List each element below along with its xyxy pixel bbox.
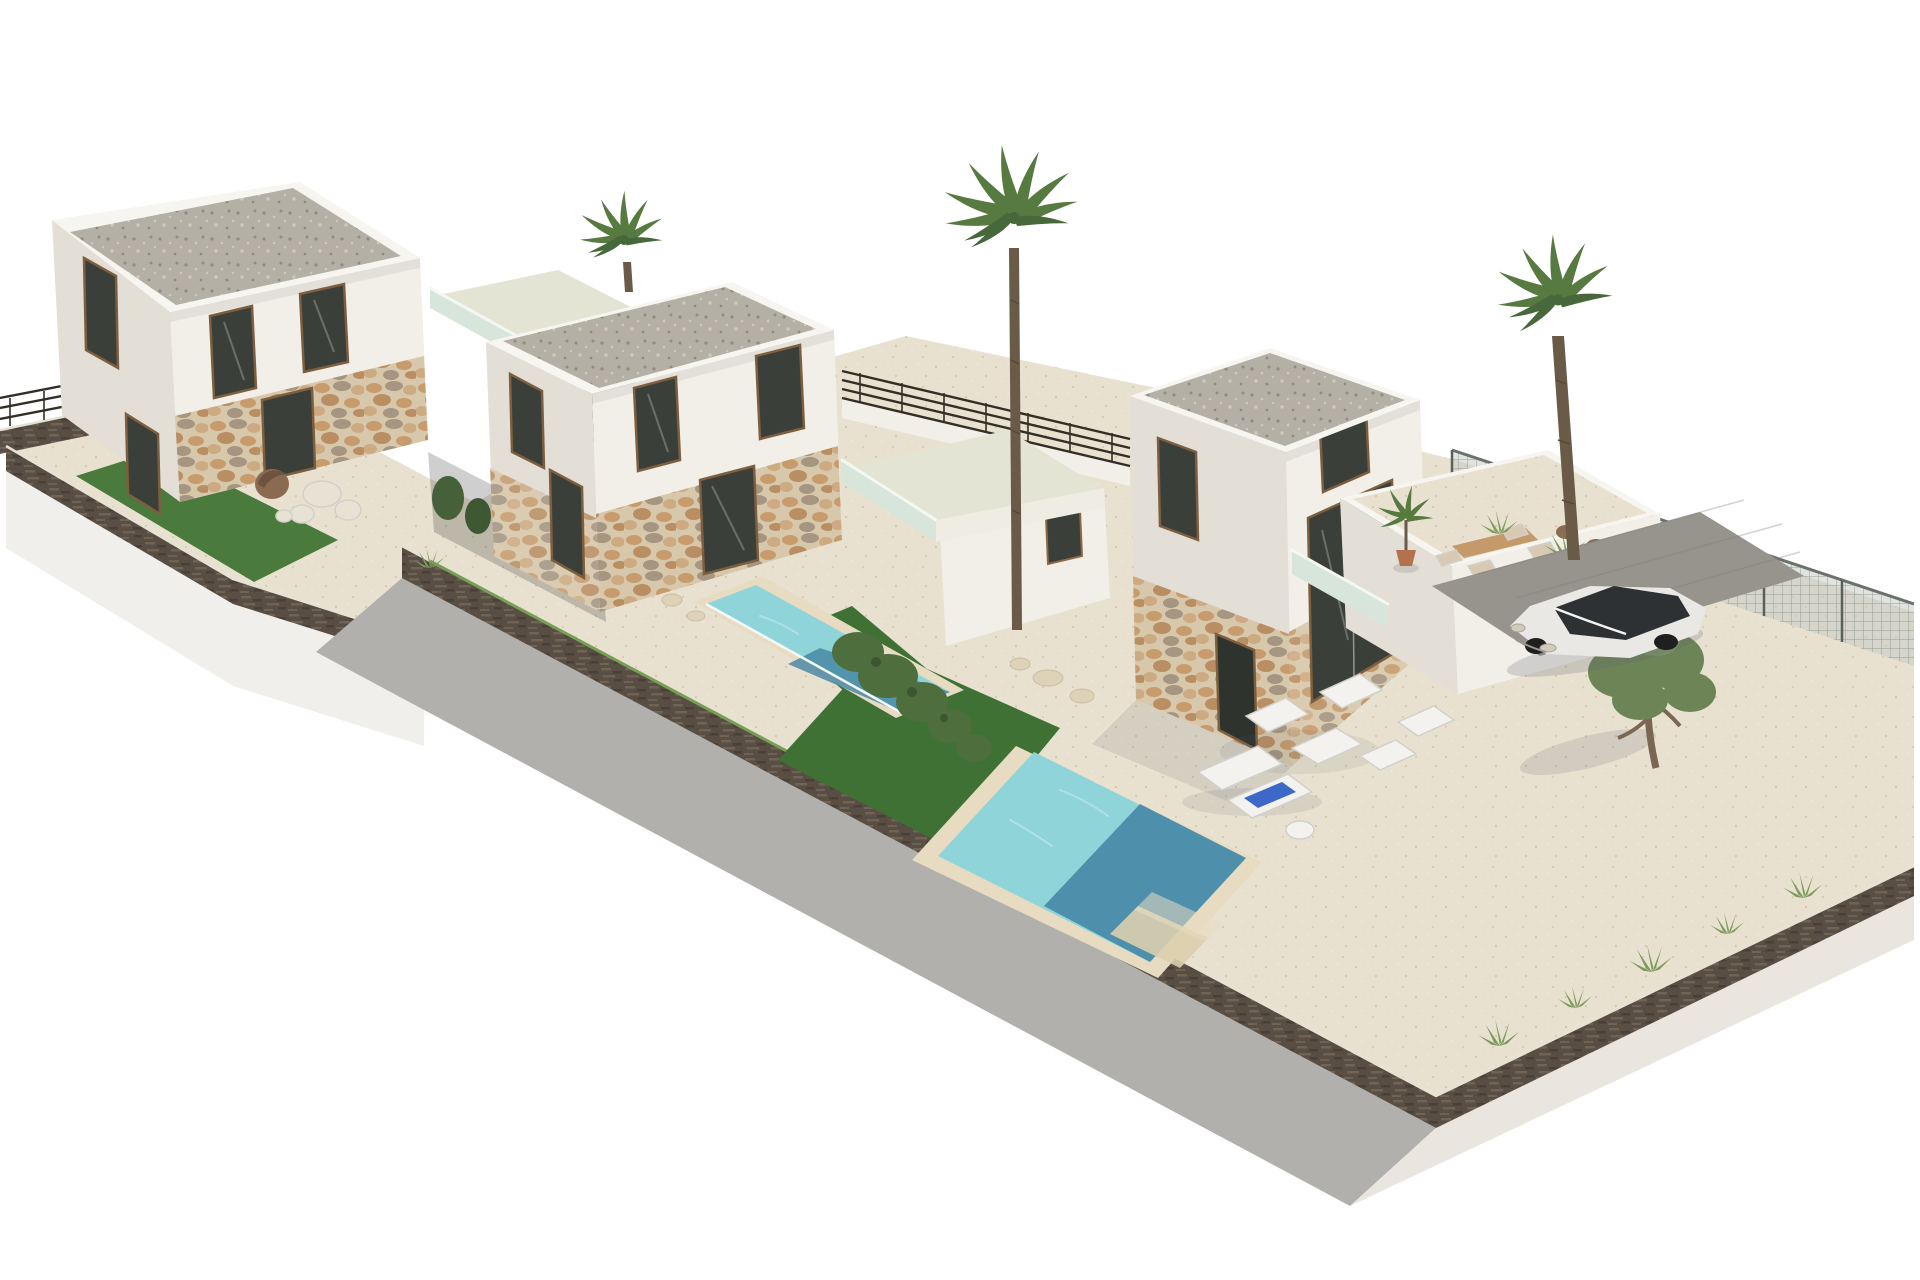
villa2-window-front-right (756, 345, 804, 439)
egg-stone (335, 500, 361, 520)
villa-render-canvas (0, 0, 1920, 1280)
villa2-window-side-upper (510, 374, 544, 468)
egg-stone-large (303, 481, 341, 507)
stepping-stone (1070, 689, 1094, 703)
villa1-window-front-left (210, 306, 256, 398)
villa1-sliding-door (262, 388, 315, 480)
stepping-stone (687, 611, 705, 621)
egg-stone (290, 505, 314, 523)
side-table (1286, 821, 1314, 839)
villa1-window-side-upper (84, 258, 118, 368)
stepping-stone (1033, 670, 1063, 686)
render-stage (0, 0, 1920, 1280)
stepping-stone (1010, 658, 1030, 670)
stepping-stone (662, 594, 682, 606)
villa2-window-side-lower (550, 470, 584, 578)
egg-stone-small (276, 510, 292, 522)
villa3-side-door (1216, 634, 1257, 750)
villa3-window-side-upper (1158, 438, 1198, 540)
climbing-plant (432, 476, 464, 520)
car-wheel-rear (1654, 634, 1678, 650)
car-headlight (1511, 624, 1525, 632)
villa2-window-front-left (634, 377, 680, 471)
climbing-plant (465, 498, 491, 534)
